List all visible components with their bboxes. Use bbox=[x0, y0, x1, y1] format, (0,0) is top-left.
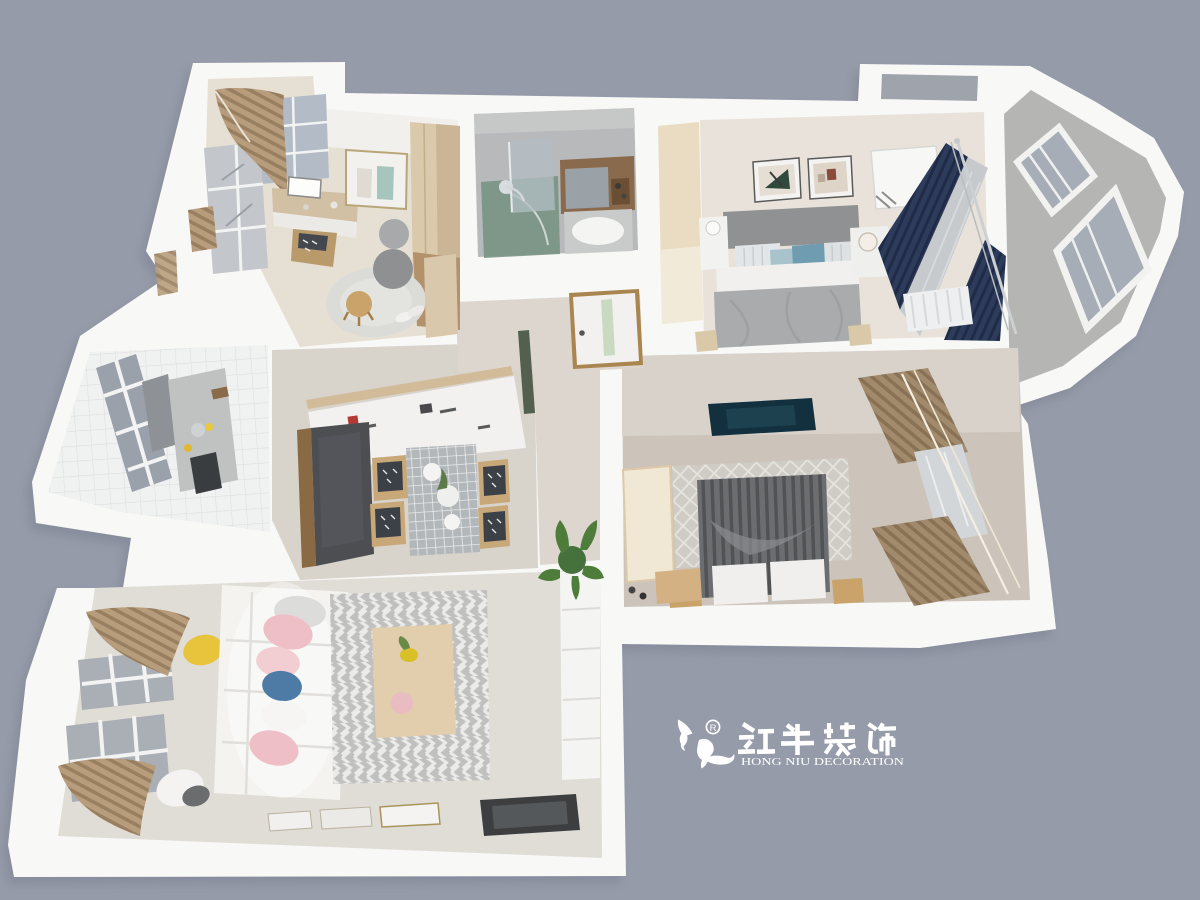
svg-text:HONG NIU DECORATION: HONG NIU DECORATION bbox=[741, 756, 904, 768]
svg-text:R: R bbox=[710, 723, 717, 734]
